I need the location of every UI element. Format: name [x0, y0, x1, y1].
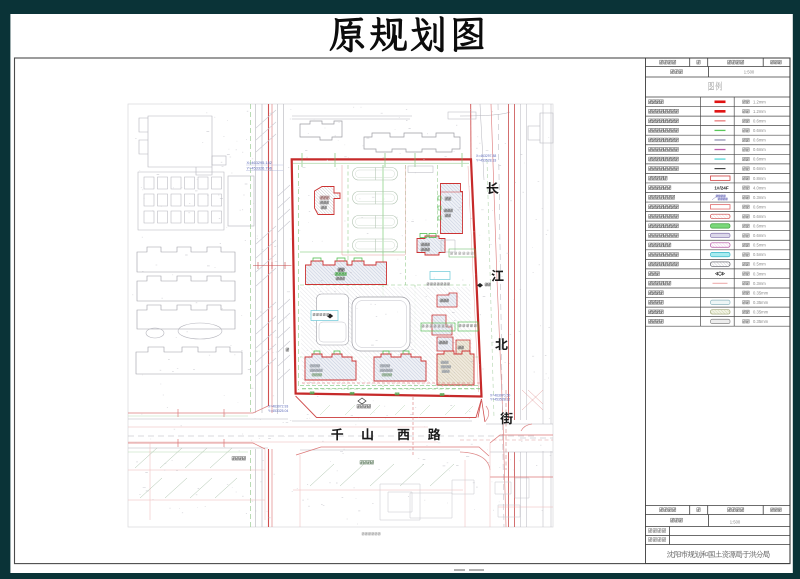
svg-text:0.6mm: 0.6mm: [753, 224, 766, 229]
svg-text:Y=453528.12: Y=453528.12: [490, 398, 510, 402]
svg-text:0.5mm: 0.5mm: [753, 243, 766, 248]
svg-text:0.6mm: 0.6mm: [753, 118, 766, 123]
svg-text:1#/24F: 1#/24F: [714, 186, 728, 191]
svg-text:0.3mm: 0.3mm: [753, 271, 766, 276]
svg-text:0.35mm: 0.35mm: [753, 290, 769, 295]
svg-text:X=463295.182: X=463295.182: [247, 160, 272, 165]
svg-text:1.2mm: 1.2mm: [753, 99, 766, 104]
svg-text:X=463297.88: X=463297.88: [476, 154, 496, 158]
svg-text:0.35mm: 0.35mm: [753, 309, 769, 314]
svg-text:Y=453528.33: Y=453528.33: [476, 159, 496, 163]
svg-text:1:500: 1:500: [730, 519, 741, 524]
svg-text:1.2mm: 1.2mm: [753, 109, 766, 114]
svg-text:4.0mm: 4.0mm: [753, 185, 766, 190]
svg-text:0.6mm: 0.6mm: [753, 166, 766, 171]
svg-text:1:500: 1:500: [744, 70, 755, 75]
svg-text:0.6mm: 0.6mm: [753, 214, 766, 219]
svg-text:0.5mm: 0.5mm: [753, 262, 766, 267]
svg-text:0.6mm: 0.6mm: [753, 204, 766, 209]
svg-text:Y=453325.04: Y=453325.04: [268, 409, 288, 413]
svg-text:Y=453326.756: Y=453326.756: [247, 165, 272, 170]
svg-text:0.3mm: 0.3mm: [753, 195, 766, 200]
svg-text:0.35mm: 0.35mm: [753, 319, 769, 324]
svg-text:0.6mm: 0.6mm: [753, 233, 766, 238]
svg-text:0.6mm: 0.6mm: [753, 128, 766, 133]
svg-text:0.35mm: 0.35mm: [753, 300, 769, 305]
svg-text:0.5mm: 0.5mm: [753, 252, 766, 257]
svg-text:0.6mm: 0.6mm: [753, 147, 766, 152]
svg-text:0.6mm: 0.6mm: [753, 138, 766, 143]
svg-text:0.3mm: 0.3mm: [753, 281, 766, 286]
svg-text:0.8mm: 0.8mm: [753, 176, 766, 181]
svg-text:0.6mm: 0.6mm: [753, 157, 766, 162]
